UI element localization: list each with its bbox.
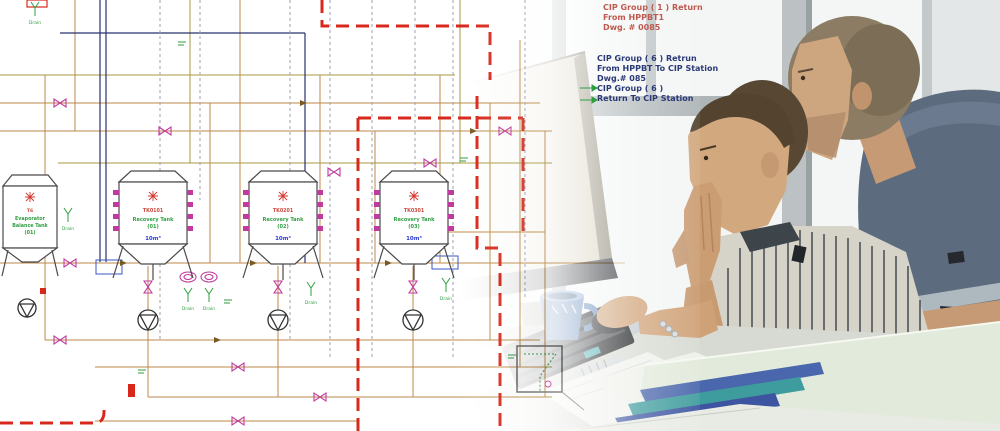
annotations: CIP Group ( 1 ) Return From HPPBT1 Dwg. … [0,0,1000,431]
cip-annotation-1: CIP Group ( 1 ) Return From HPPBT1 Dwg. … [603,3,703,33]
cip-annotation-6: CIP Group ( 6 ) Retrun From HPPBT To CIP… [597,54,718,104]
leader-arrows [578,82,598,112]
hero-banner: T6 Evaporator Balance Tank (01) TK0101 R… [0,0,1000,431]
